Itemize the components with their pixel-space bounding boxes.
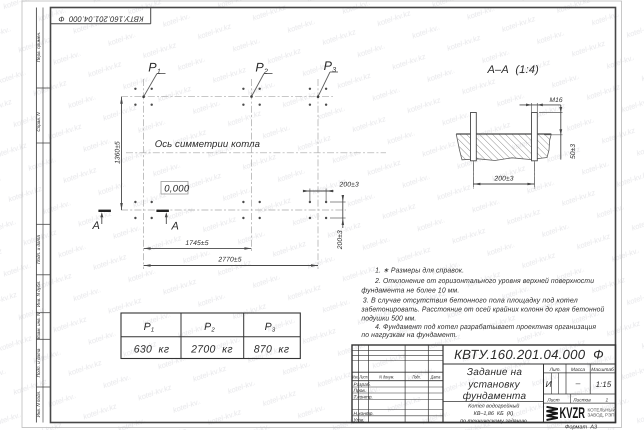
svg-text:Котел водогрейный: Котел водогрейный	[468, 404, 519, 410]
svg-text:А: А	[92, 220, 100, 232]
svg-text:Взам. инв. N: Взам. инв. N	[36, 312, 41, 339]
svg-text:50±3: 50±3	[570, 144, 577, 159]
svg-text:N докум.: N докум.	[379, 374, 394, 379]
svg-text:1360±5: 1360±5	[114, 141, 121, 164]
svg-text:по нагрузкам на фундамент.: по нагрузкам на фундамент.	[361, 330, 457, 339]
svg-text:Утв.: Утв.	[354, 417, 365, 423]
svg-text:И: И	[545, 379, 552, 389]
svg-text:200±3: 200±3	[493, 176, 513, 183]
svg-text:Разраб.: Разраб.	[354, 382, 371, 388]
svg-text:200±3: 200±3	[337, 230, 344, 250]
svg-text:КВ–1,86 КБ (К): КВ–1,86 КБ (К)	[474, 411, 514, 417]
svg-text:Подп. и дата: Подп. и дата	[36, 235, 41, 264]
svg-text:Инв. N подл.: Инв. N подл.	[36, 391, 41, 418]
svg-text:3. В случае отсутствия бетонно: 3. В случае отсутствия бетонного пола пл…	[363, 295, 578, 304]
svg-text:870 кг: 870 кг	[254, 344, 290, 356]
svg-text:1:15: 1:15	[596, 380, 612, 389]
svg-text:Н.контр.: Н.контр.	[354, 411, 374, 417]
svg-text:КВТУ.160.201.04.000 Ф: КВТУ.160.201.04.000 Ф	[454, 347, 604, 362]
svg-text:Пров.: Пров.	[354, 388, 367, 394]
svg-text:Лист: Лист	[359, 374, 368, 379]
svg-text:Лист: Лист	[546, 397, 559, 403]
svg-text:по техническому заданию: по техническому заданию	[460, 418, 527, 424]
svg-text:КВТУ.160.201.04.000 Ф: КВТУ.160.201.04.000 Ф	[58, 14, 143, 23]
svg-text:Изм.: Изм.	[352, 374, 358, 379]
svg-text:Дата: Дата	[430, 374, 441, 379]
svg-text:630 кг: 630 кг	[134, 344, 170, 356]
svg-text:М16: М16	[550, 97, 563, 104]
svg-text:Лит.: Лит.	[549, 367, 561, 373]
svg-text:фундамента: фундамента	[463, 391, 527, 402]
svg-text:2. Отклонение от горизонтально: 2. Отклонение от горизонтального уровня …	[374, 276, 594, 285]
svg-text:2770±5: 2770±5	[217, 257, 241, 264]
svg-text:А: А	[171, 221, 179, 233]
svg-text:Масса: Масса	[571, 367, 586, 373]
svg-text:2700 кг: 2700 кг	[190, 344, 233, 356]
svg-text:КОТЕЛЬНЫЙ: КОТЕЛЬНЫЙ	[588, 406, 616, 412]
svg-text:Инв. N дубл.: Инв. N дубл.	[36, 281, 41, 308]
svg-text:Масштаб: Масштаб	[591, 367, 614, 373]
svg-text:Задание на: Задание на	[467, 367, 522, 378]
svg-text:Формат А3: Формат А3	[565, 424, 598, 430]
svg-text:Листов: Листов	[572, 397, 591, 403]
svg-text:Подп.: Подп.	[413, 374, 421, 379]
svg-text:А–А (1:4): А–А (1:4)	[487, 64, 540, 76]
svg-text:–: –	[575, 378, 581, 388]
svg-text:1: 1	[605, 397, 608, 403]
svg-text:1. ∗ Размеры для справок.: 1. ∗ Размеры для справок.	[375, 265, 464, 274]
svg-text:Ось симметрии котла: Ось симметрии котла	[155, 139, 260, 150]
svg-text:Т.контр.: Т.контр.	[354, 395, 373, 401]
svg-text:Справ. N: Справ. N	[36, 112, 41, 132]
svg-text:ЗАВОД, РЭП: ЗАВОД, РЭП	[588, 413, 615, 418]
svg-text:200±3: 200±3	[339, 182, 359, 189]
svg-text:KVZR: KVZR	[560, 405, 586, 422]
svg-text:Подп. и дата: Подп. и дата	[36, 348, 41, 377]
svg-text:установку: установку	[467, 380, 520, 391]
svg-text:Перв. примен.: Перв. примен.	[36, 32, 41, 63]
svg-text:1745±5: 1745±5	[185, 240, 208, 247]
svg-text:0,000: 0,000	[164, 184, 190, 195]
svg-text:забетонировать. Расстояние от: забетонировать. Расстояние от осей крайн…	[360, 305, 604, 314]
svg-text:фундамента не более 10 мм.: фундамента не более 10 мм.	[361, 285, 459, 294]
